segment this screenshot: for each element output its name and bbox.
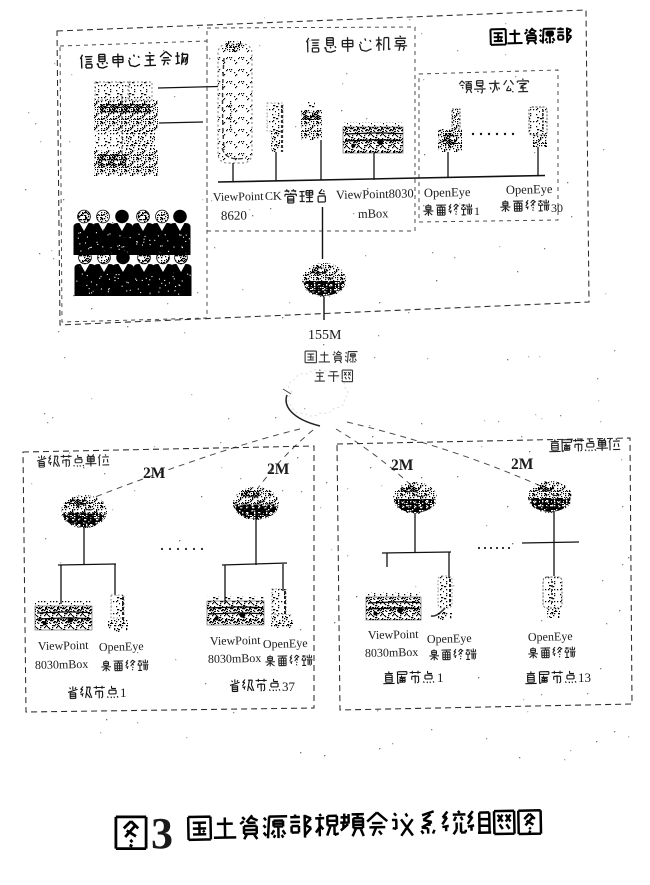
svg-text:ViewPoint: ViewPoint xyxy=(368,627,420,642)
svg-text:2M: 2M xyxy=(143,465,166,482)
svg-text:8030mBox: 8030mBox xyxy=(365,645,419,660)
svg-text:ViewPoint: ViewPoint xyxy=(38,638,90,653)
svg-text:2M: 2M xyxy=(391,457,414,474)
svg-text:8030mBox: 8030mBox xyxy=(35,657,89,672)
svg-text:2M: 2M xyxy=(511,456,534,473)
svg-text:2M: 2M xyxy=(267,461,290,478)
svg-text:13: 13 xyxy=(578,670,591,685)
svg-text:1: 1 xyxy=(474,204,480,218)
svg-text:mBox: mBox xyxy=(358,206,390,221)
svg-text:1: 1 xyxy=(437,670,444,685)
svg-text:1: 1 xyxy=(120,685,127,700)
svg-text:OpenEye: OpenEye xyxy=(99,639,144,654)
svg-text:OpenEye: OpenEye xyxy=(506,182,553,197)
svg-text:ViewPoint8030: ViewPoint8030 xyxy=(336,186,414,202)
svg-text:OpenEye: OpenEye xyxy=(528,629,573,644)
svg-text:ViewPoint: ViewPoint xyxy=(213,189,265,204)
svg-text:30: 30 xyxy=(551,201,563,215)
svg-text:37: 37 xyxy=(282,679,296,694)
svg-text:OpenEye: OpenEye xyxy=(424,185,471,200)
svg-text:8030mBox: 8030mBox xyxy=(208,651,262,666)
svg-text:CK: CK xyxy=(265,189,282,203)
svg-text:ViewPoint: ViewPoint xyxy=(210,633,262,648)
svg-text:8620: 8620 xyxy=(221,207,247,223)
svg-text:155M: 155M xyxy=(308,328,342,343)
svg-text:3: 3 xyxy=(151,809,173,858)
svg-text:OpenEye: OpenEye xyxy=(427,631,472,646)
svg-text:OpenEye: OpenEye xyxy=(263,636,308,651)
